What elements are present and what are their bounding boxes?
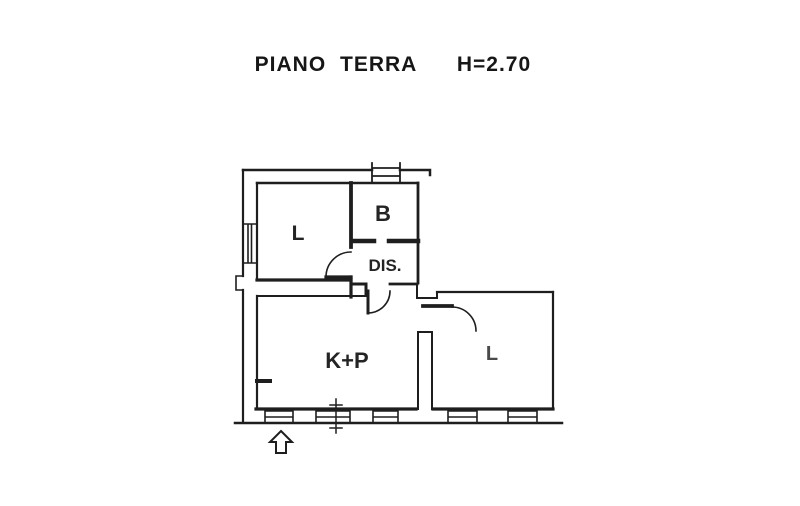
room-label-l-upper: L xyxy=(292,222,305,245)
door-swing-arc xyxy=(452,307,476,331)
floorplan-screenshot: PIANO TERRA H=2.70 xyxy=(0,0,800,506)
door-kp-to-l-right xyxy=(423,306,476,331)
dis-floor-wall-left xyxy=(351,284,366,295)
window-icon xyxy=(316,411,350,423)
bottom-windows xyxy=(265,411,537,423)
door-swing-arc xyxy=(326,252,351,277)
room-label-l-right: L xyxy=(486,343,498,365)
window-glass-lines xyxy=(244,224,256,263)
kp-top-right-step-wall xyxy=(417,284,437,298)
window-icon xyxy=(265,411,293,423)
top-wall-window-icon xyxy=(372,163,400,182)
window-icon xyxy=(448,411,477,423)
window-glass-lines xyxy=(372,163,400,182)
window-icon xyxy=(508,411,537,423)
room-label-dis: DIS. xyxy=(368,256,401,275)
window-icon xyxy=(373,411,398,423)
wall-kp-lright-divider xyxy=(418,332,432,409)
room-label-b: B xyxy=(375,201,391,226)
left-wall-notch xyxy=(236,276,243,290)
door-l-to-dis xyxy=(326,252,351,277)
top-exterior-wall xyxy=(243,170,430,175)
room-label-kp: K+P xyxy=(325,348,368,373)
entrance-arrow-icon xyxy=(270,431,292,453)
ceiling-height-label: H=2.70 xyxy=(457,53,531,76)
interior-walls xyxy=(256,183,553,409)
left-wall-window-icon xyxy=(244,224,256,263)
floor-plan-canvas: PIANO TERRA H=2.70 xyxy=(0,0,800,506)
door-swing-arc xyxy=(368,291,390,313)
plan-title: PIANO TERRA xyxy=(255,53,418,76)
door-dis-to-kp xyxy=(368,291,390,313)
section-cut-mark xyxy=(330,399,342,433)
